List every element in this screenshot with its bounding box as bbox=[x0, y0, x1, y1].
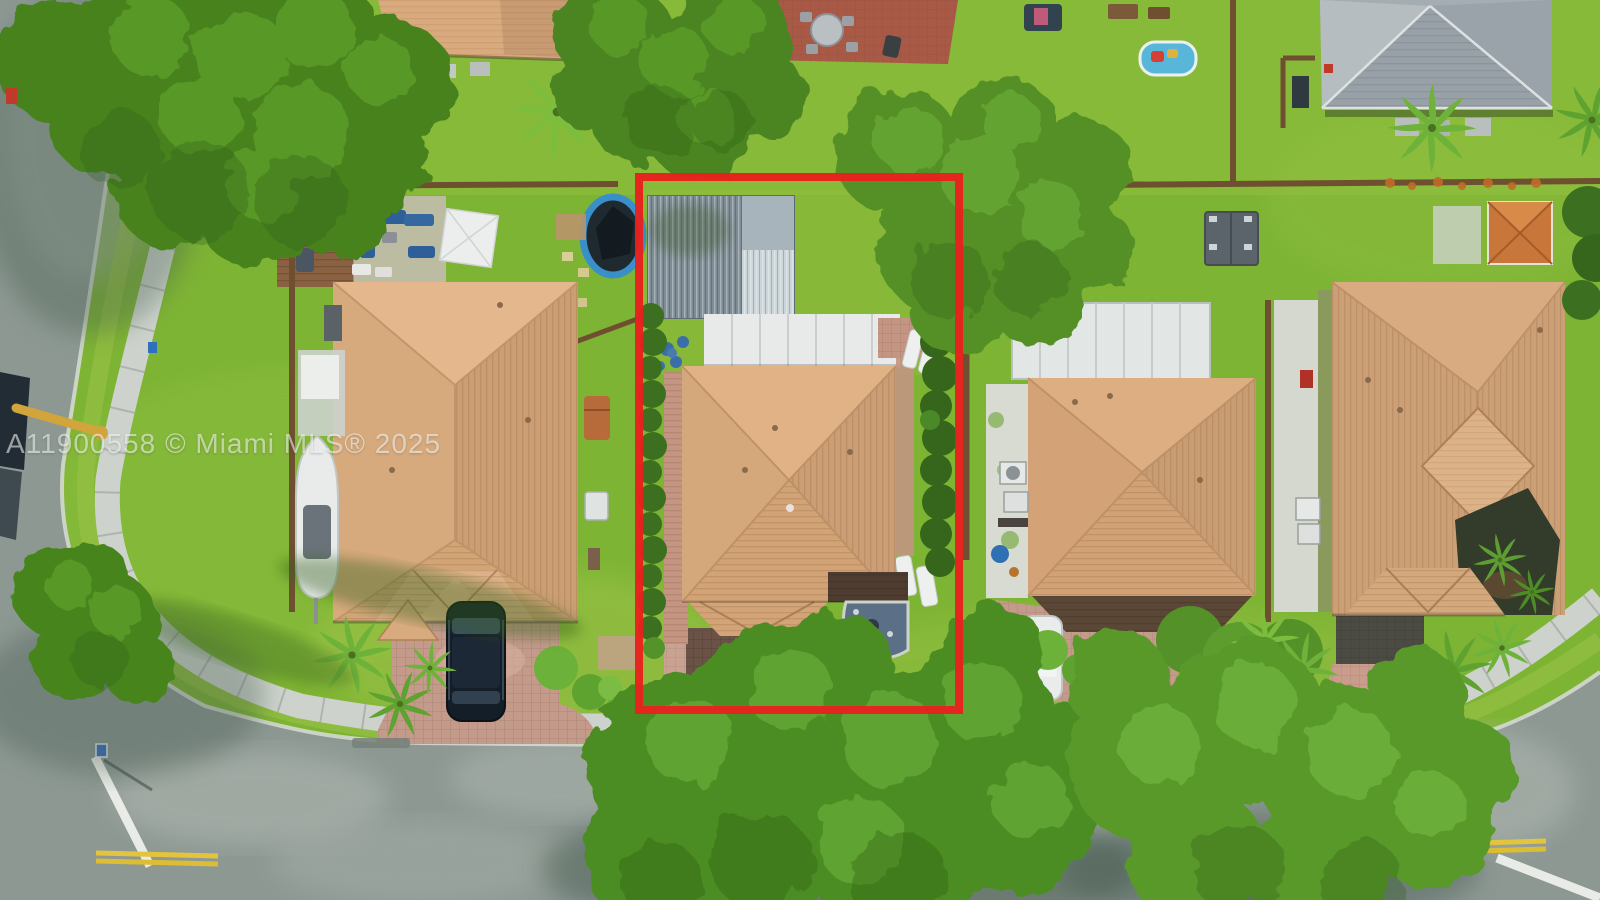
round-table bbox=[811, 14, 843, 46]
subject-house-roof bbox=[682, 366, 908, 636]
bin bbox=[1292, 76, 1309, 108]
tree-bottom-right bbox=[1066, 630, 1516, 900]
red-plant bbox=[6, 88, 17, 104]
aerial-photo: A11900558 © Miami MLS® 2025 bbox=[0, 0, 1600, 900]
kiddie-pool bbox=[1140, 42, 1196, 75]
white-umbrella bbox=[440, 209, 499, 268]
yellow-line-left-1 bbox=[96, 853, 218, 856]
yellow-line-left-2 bbox=[96, 861, 218, 864]
aerial-photo-scene bbox=[0, 0, 1600, 900]
house-right-roof bbox=[1332, 282, 1565, 615]
blue-barrel bbox=[991, 545, 1009, 563]
house-middle-roof bbox=[1028, 378, 1256, 632]
garden-shed-gray bbox=[1205, 212, 1258, 265]
house-right bbox=[1274, 282, 1565, 615]
utility-marker-blue bbox=[148, 342, 157, 353]
gravel-path bbox=[1274, 300, 1318, 612]
storm-drain bbox=[352, 738, 410, 748]
ac-unit bbox=[585, 492, 608, 520]
subject-storage-shed bbox=[648, 196, 794, 318]
orange-gazebo bbox=[1433, 202, 1552, 264]
subject-white-canopy bbox=[704, 314, 900, 369]
